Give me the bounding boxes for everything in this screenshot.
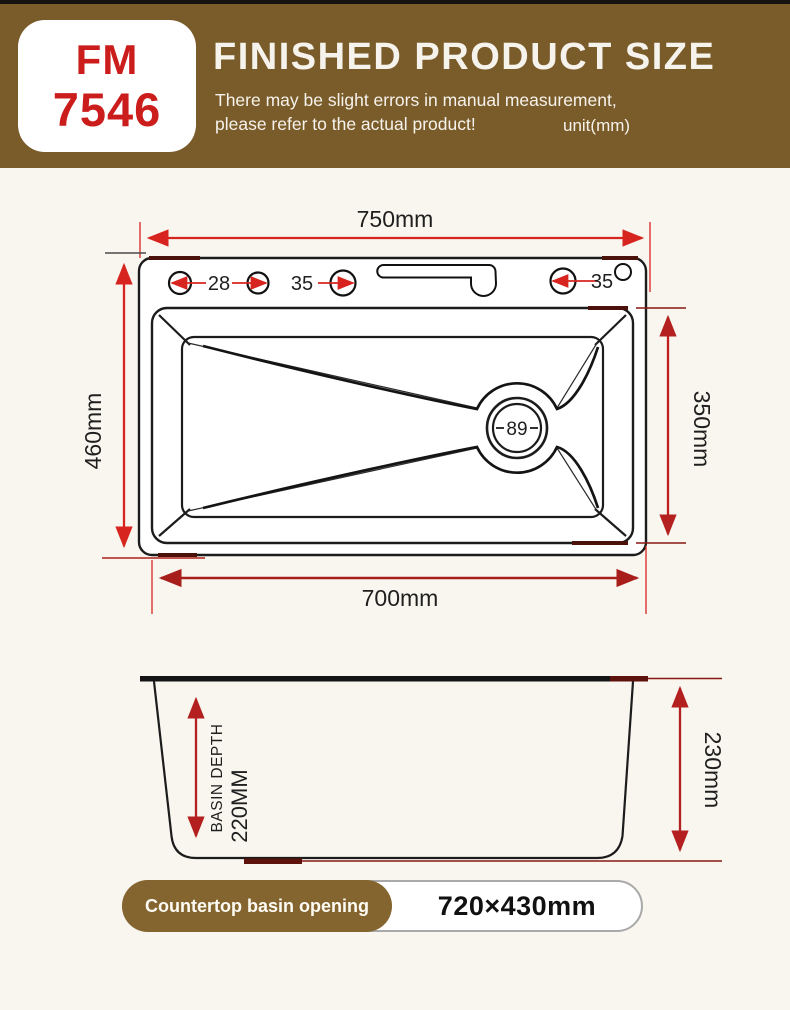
overall-depth-label: 460mm	[80, 393, 106, 470]
corner-mark	[610, 676, 648, 682]
overall-width-label: 750mm	[357, 206, 434, 232]
inner-basin-depth-label: 350mm	[689, 391, 715, 468]
corner-mark	[244, 859, 302, 865]
hole-right-diameter-label: 35	[591, 271, 613, 293]
badge-label: Countertop basin opening	[122, 880, 392, 932]
drain: 89	[487, 398, 547, 458]
small-deck-hole	[615, 264, 631, 280]
top-view: 750mm 28 35 35	[80, 206, 715, 614]
basin-depth-value: 220MM	[227, 769, 252, 842]
bottom-width-label: 700mm	[362, 585, 439, 611]
drain-diameter-label: 89	[506, 419, 527, 440]
hole-middle-diameter-label: 35	[291, 273, 313, 295]
badge-value: 720×430mm	[392, 882, 642, 930]
side-view: BASIN DEPTH 220MM 230mm	[140, 676, 726, 864]
overall-height-label: 230mm	[700, 732, 726, 809]
basin-depth-label: BASIN DEPTH	[209, 724, 226, 833]
hole-left-diameter-label: 28	[208, 273, 230, 295]
countertop-opening-badge: Countertop basin opening 720×430mm	[122, 880, 643, 932]
dimension-diagram: 750mm 28 35 35	[0, 0, 790, 1010]
countertop-rim-bar	[140, 676, 648, 682]
